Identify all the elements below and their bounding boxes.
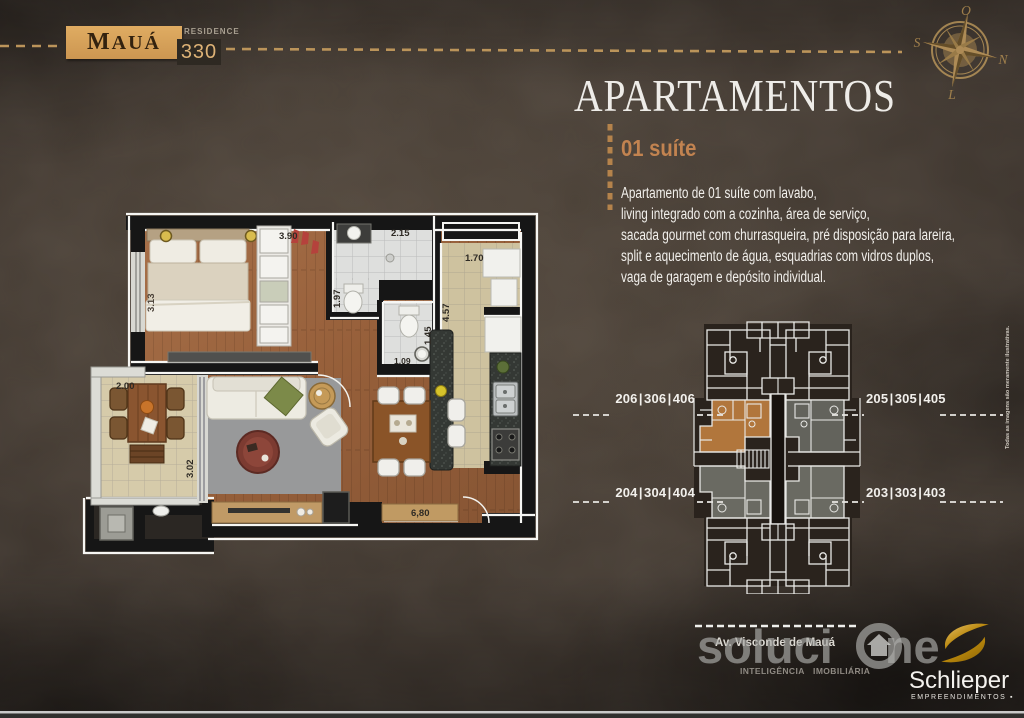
svg-text:1.45: 1.45 [423,326,434,345]
svg-text:S: S [914,35,921,50]
svg-text:4.57: 4.57 [441,304,452,323]
svg-text:1.09: 1.09 [394,356,411,366]
svg-text:O: O [961,3,971,18]
svg-text:3.90: 3.90 [279,231,298,242]
svg-text:L: L [947,87,956,102]
svg-text:1.70: 1.70 [465,253,484,264]
svg-text:2.15: 2.15 [391,228,410,239]
svg-text:2.00: 2.00 [116,381,135,392]
svg-text:6,80: 6,80 [411,508,430,519]
svg-text:3.02: 3.02 [185,460,196,479]
svg-text:1.97: 1.97 [332,290,343,309]
svg-text:N: N [997,52,1008,67]
svg-text:3.13: 3.13 [146,294,157,313]
